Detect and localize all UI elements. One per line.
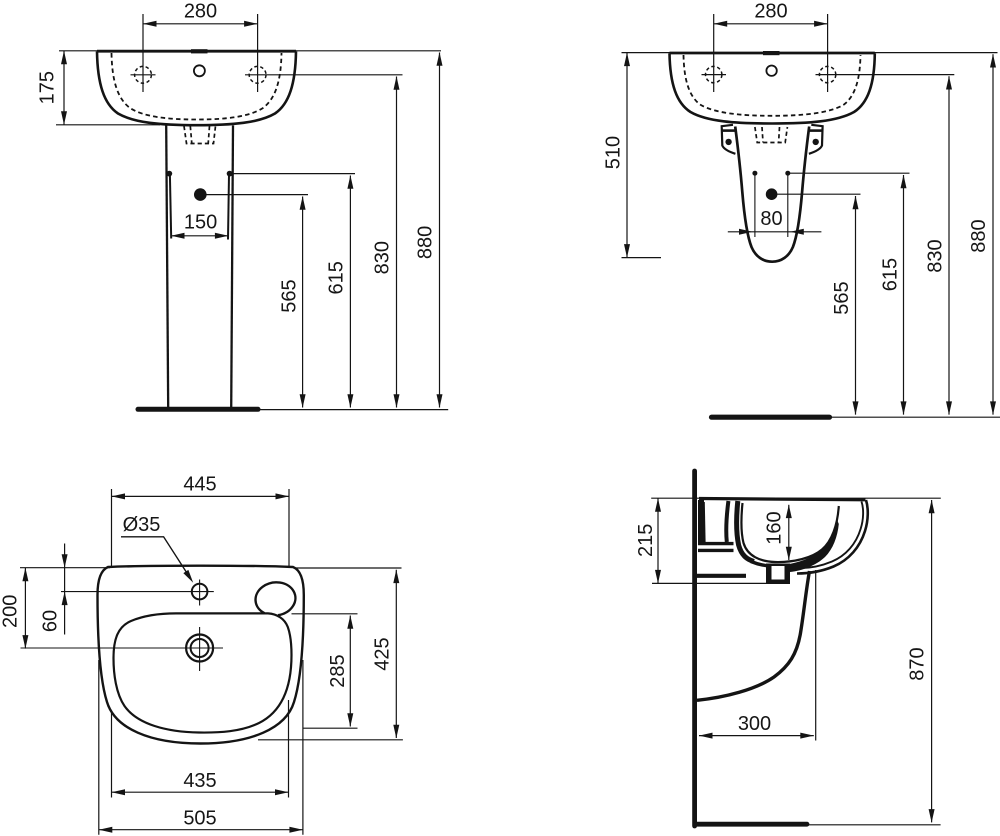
svg-text:510: 510: [603, 136, 625, 169]
svg-text:830: 830: [372, 241, 394, 274]
svg-text:285: 285: [327, 654, 349, 687]
svg-text:200: 200: [0, 595, 22, 628]
svg-text:880: 880: [968, 219, 990, 252]
svg-text:830: 830: [925, 239, 947, 272]
svg-text:60: 60: [40, 610, 62, 632]
svg-text:880: 880: [415, 226, 437, 259]
svg-text:615: 615: [326, 261, 348, 294]
svg-text:300: 300: [738, 713, 771, 735]
svg-text:280: 280: [184, 1, 217, 23]
svg-text:80: 80: [760, 208, 782, 230]
svg-text:505: 505: [183, 808, 216, 830]
svg-text:160: 160: [763, 511, 785, 544]
svg-text:150: 150: [184, 212, 217, 234]
svg-text:615: 615: [880, 258, 902, 291]
svg-text:565: 565: [279, 279, 301, 312]
svg-text:435: 435: [183, 770, 216, 792]
svg-text:425: 425: [372, 637, 394, 670]
svg-text:565: 565: [831, 281, 853, 314]
svg-text:Ø35: Ø35: [123, 514, 161, 536]
svg-text:870: 870: [907, 647, 929, 680]
svg-text:215: 215: [635, 524, 657, 557]
svg-text:175: 175: [37, 71, 59, 104]
svg-text:280: 280: [754, 1, 787, 23]
svg-text:445: 445: [183, 474, 216, 496]
